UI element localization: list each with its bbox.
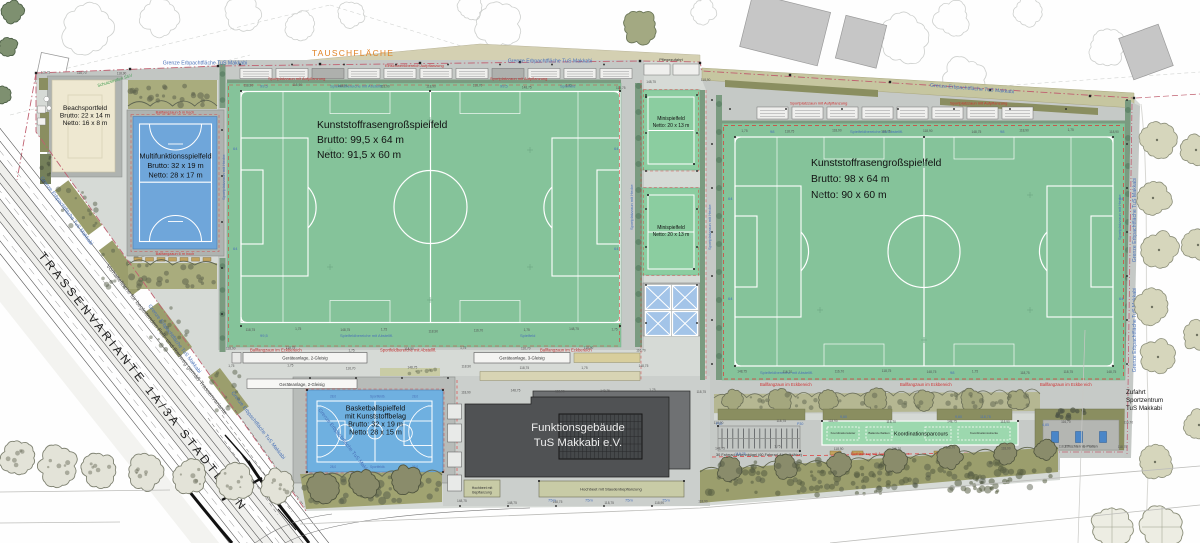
svg-text:1,75: 1,75 [381, 327, 387, 331]
svg-text:64: 64 [1119, 296, 1124, 301]
svg-text:118,90: 118,90 [293, 83, 303, 87]
svg-text:118,75: 118,75 [616, 86, 626, 90]
svg-text:Sportplatzzaun mit Hecke: Sportplatzzaun mit Hecke [1117, 194, 1122, 240]
svg-text:Ballfangzaun im Eckbereich: Ballfangzaun im Eckbereich [900, 382, 952, 387]
svg-text:Bepflanzung: Bepflanzung [472, 491, 492, 495]
svg-text:Beachsportfeld: Beachsportfeld [63, 105, 107, 112]
svg-text:116,70: 116,70 [636, 348, 646, 352]
svg-text:118,90: 118,90 [429, 329, 439, 333]
svg-text:118,90: 118,90 [584, 346, 594, 350]
svg-text:Sportplatzzaun mit Hecke: Sportplatzzaun mit Hecke [707, 204, 712, 250]
svg-text:118,75: 118,75 [1064, 370, 1074, 374]
svg-text:118,90: 118,90 [1001, 446, 1011, 450]
svg-text:148,75: 148,75 [511, 388, 521, 392]
svg-text:98: 98 [950, 370, 955, 375]
svg-text:118,90: 118,90 [1109, 130, 1119, 134]
svg-text:118,75: 118,75 [1020, 371, 1030, 375]
svg-text:64: 64 [233, 146, 238, 151]
svg-text:Ballfangzaun im Eckbereich: Ballfangzaun im Eckbereich [1040, 382, 1092, 387]
svg-text:Brutto: 99,5 x 64 m: Brutto: 99,5 x 64 m [317, 135, 404, 146]
svg-text:118,75: 118,75 [246, 328, 256, 332]
svg-text:116,70: 116,70 [1061, 420, 1071, 424]
svg-text:116,70: 116,70 [886, 420, 896, 424]
svg-text:Minispielfeld: Minispielfeld [657, 225, 685, 231]
svg-text:1,75: 1,75 [612, 328, 618, 332]
svg-text:118,75: 118,75 [1118, 445, 1128, 449]
svg-text:118,75: 118,75 [286, 346, 296, 350]
svg-text:Sportfeldb.: Sportfeldb. [370, 395, 386, 399]
svg-text:118,75: 118,75 [604, 501, 614, 505]
svg-text:Sportplatzzaun mit Aufpflanzun: Sportplatzzaun mit Aufpflanzung [950, 101, 1007, 106]
svg-text:Sportplatzzaun mit Aufpflanzun: Sportplatzzaun mit Aufpflanzung [790, 101, 847, 106]
svg-text:1,75: 1,75 [774, 445, 780, 449]
svg-text:148,75: 148,75 [338, 84, 348, 88]
svg-text:P30: P30 [797, 422, 803, 426]
svg-text:TuS Makkabi: TuS Makkabi [1126, 405, 1162, 412]
svg-text:1,75: 1,75 [566, 84, 572, 88]
svg-text:1,75: 1,75 [649, 388, 655, 392]
svg-text:1,75: 1,75 [228, 364, 234, 368]
svg-text:148,75: 148,75 [553, 500, 563, 504]
svg-text:P30: P30 [716, 422, 722, 426]
svg-text:116,70: 116,70 [473, 83, 483, 87]
svg-text:Multifunktionsspielfeld: Multifunktionsspielfeld [139, 152, 211, 161]
svg-text:Hochbeet mit Staudenbepflanzun: Hochbeet mit Staudenbepflanzung [580, 487, 641, 492]
svg-text:Brutto: 32 x 19 m: Brutto: 32 x 19 m [147, 161, 203, 170]
svg-text:118,90: 118,90 [555, 390, 565, 394]
svg-text:118,75: 118,75 [882, 369, 892, 373]
svg-text:64: 64 [728, 196, 733, 201]
svg-text:116,70: 116,70 [892, 447, 902, 451]
svg-text:118,75: 118,75 [735, 452, 746, 456]
svg-text:118,75: 118,75 [980, 415, 991, 419]
svg-text:148,75: 148,75 [737, 370, 747, 374]
svg-text:148,75: 148,75 [340, 328, 350, 332]
svg-text:118,90: 118,90 [923, 129, 933, 133]
svg-text:118,75: 118,75 [697, 390, 707, 394]
svg-text:118,90: 118,90 [426, 84, 436, 88]
svg-text:99,5: 99,5 [500, 84, 509, 89]
svg-text:1,75: 1,75 [741, 129, 747, 133]
svg-text:Brutto: 98 x 64 m: Brutto: 98 x 64 m [811, 174, 889, 185]
svg-text:Sportplatzzaun mit Aufpflanzun: Sportplatzzaun mit Aufpflanzung [268, 76, 325, 81]
svg-text:28,0: 28,0 [330, 395, 336, 399]
svg-text:118,90: 118,90 [244, 84, 254, 88]
svg-text:Netto: 16 x 8 m: Netto: 16 x 8 m [63, 120, 108, 127]
svg-text:118,75: 118,75 [520, 366, 530, 370]
svg-text:Netto: 28 x 17 m: Netto: 28 x 17 m [148, 171, 202, 180]
svg-text:Zufahrt: Zufahrt [1126, 389, 1146, 396]
svg-text:Koordinationsleiter: Koordinationsleiter [831, 431, 856, 435]
svg-text:116,70: 116,70 [346, 366, 356, 370]
svg-text:1,75: 1,75 [1068, 128, 1074, 132]
svg-text:Geräteanlage, 3-Gleisig: Geräteanlage, 3-Gleisig [499, 356, 545, 361]
svg-text:1,75: 1,75 [295, 327, 301, 331]
svg-text:118,90: 118,90 [226, 347, 236, 351]
svg-text:148,75: 148,75 [646, 80, 656, 84]
svg-text:148,75: 148,75 [1107, 370, 1117, 374]
svg-text:Kunststoffrasengroßspielfeld: Kunststoffrasengroßspielfeld [811, 158, 942, 169]
svg-text:148,75: 148,75 [927, 370, 937, 374]
svg-text:148,75: 148,75 [457, 499, 467, 503]
svg-text:118,90: 118,90 [832, 128, 842, 132]
svg-text:Spielfeldbereiche mit Abstellf: Spielfeldbereiche mit Abstellfl. [850, 129, 903, 134]
svg-text:Sportfeldb.: Sportfeldb. [370, 465, 386, 469]
svg-text:1,75: 1,75 [972, 369, 978, 373]
svg-text:98: 98 [1000, 129, 1005, 134]
svg-text:118,90: 118,90 [1019, 128, 1029, 132]
svg-text:64: 64 [614, 146, 619, 151]
svg-text:99,5: 99,5 [260, 333, 269, 338]
svg-text:4,85: 4,85 [1042, 423, 1049, 427]
svg-text:9,60: 9,60 [955, 415, 962, 419]
svg-text:Grenze Erbpachtfläche TuS Makk: Grenze Erbpachtfläche TuS Makkabi [508, 59, 592, 65]
svg-text:116,70: 116,70 [474, 329, 484, 333]
svg-text:118,75: 118,75 [1059, 445, 1069, 449]
svg-text:Grenze Erbpachtfläche TuS Makk: Grenze Erbpachtfläche TuS Makkabi [163, 61, 247, 67]
svg-text:118,75: 118,75 [777, 419, 787, 423]
svg-text:118,90: 118,90 [834, 447, 844, 451]
svg-text:148,75: 148,75 [947, 419, 957, 423]
svg-text:118,90: 118,90 [828, 419, 838, 423]
svg-text:118,90: 118,90 [701, 78, 711, 82]
svg-text:118,90: 118,90 [655, 501, 665, 505]
svg-text:28,0: 28,0 [412, 395, 418, 399]
svg-text:9,60: 9,60 [840, 415, 847, 419]
svg-text:Sportzentrum: Sportzentrum [1126, 397, 1163, 404]
svg-text:Geräteanlage, 2-Gleisig: Geräteanlage, 2-Gleisig [279, 382, 325, 387]
svg-text:1,75: 1,75 [581, 366, 587, 370]
svg-text:118,90: 118,90 [380, 85, 390, 89]
svg-text:Ballfangzaun 6 m hoch: Ballfangzaun 6 m hoch [156, 252, 195, 256]
svg-text:Koordinationsparcours: Koordinationsparcours [894, 432, 948, 438]
svg-text:148,75: 148,75 [600, 389, 610, 393]
svg-text:148,75: 148,75 [408, 366, 418, 370]
svg-text:Netto: 20 x 13 m: Netto: 20 x 13 m [653, 123, 690, 129]
svg-text:1,75: 1,75 [287, 364, 293, 368]
svg-text:1,75: 1,75 [524, 328, 530, 332]
svg-text:118,90: 118,90 [461, 391, 471, 395]
svg-text:Netto: 90 x 60 m: Netto: 90 x 60 m [811, 190, 887, 201]
svg-text:118,75: 118,75 [881, 130, 891, 134]
svg-text:116,70: 116,70 [1124, 421, 1134, 425]
svg-text:Minispielfeld: Minispielfeld [657, 116, 685, 122]
svg-text:1,75: 1,75 [349, 349, 355, 353]
svg-text:118,90: 118,90 [698, 500, 708, 504]
svg-text:Hochbeet mit: Hochbeet mit [472, 486, 493, 490]
svg-text:Brutto: 22 x 14 m: Brutto: 22 x 14 m [60, 113, 111, 120]
svg-text:64: 64 [233, 246, 238, 251]
svg-text:Netto: 91,5 x 60 m: Netto: 91,5 x 60 m [317, 150, 401, 161]
svg-text:Funktionsgebäude: Funktionsgebäude [531, 422, 625, 434]
svg-text:148,75: 148,75 [639, 364, 649, 368]
svg-text:Ballfangzaun im Eckbereich: Ballfangzaun im Eckbereich [760, 382, 812, 387]
svg-text:75m: 75m [585, 498, 593, 503]
svg-text:Sportplatzzaun mit Hecke: Sportplatzzaun mit Hecke [221, 154, 226, 200]
svg-text:Spielfeldbereiche mit Abstellf: Spielfeldbereiche mit Abstellfl. [340, 333, 393, 338]
svg-text:Spielfeld: Spielfeld [520, 333, 535, 338]
svg-text:TuS Makkabi e.V.: TuS Makkabi e.V. [534, 437, 622, 449]
svg-text:Geräteanlage, 2-Gleisig: Geräteanlage, 2-Gleisig [282, 356, 328, 361]
svg-text:148,75: 148,75 [715, 446, 725, 450]
svg-text:118,75: 118,75 [41, 71, 51, 75]
svg-text:Netto: 20 x 13 m: Netto: 20 x 13 m [653, 232, 690, 238]
svg-text:118,90: 118,90 [1000, 420, 1010, 424]
svg-text:116,70: 116,70 [521, 346, 531, 350]
svg-text:148,75: 148,75 [522, 86, 532, 90]
svg-text:1,75: 1,75 [460, 346, 466, 350]
svg-text:99,5: 99,5 [260, 84, 269, 89]
svg-text:Sportplatzzaun mit Hecke: Sportplatzzaun mit Hecke [629, 184, 634, 230]
svg-text:98: 98 [770, 129, 775, 134]
svg-text:Ballfangzaun 6 m hoch: Ballfangzaun 6 m hoch [156, 111, 195, 115]
svg-text:118,90: 118,90 [117, 72, 127, 76]
svg-text:116,70: 116,70 [783, 370, 793, 374]
svg-text:Balancierbalken: Balancierbalken [868, 431, 890, 435]
svg-text:148,75: 148,75 [972, 130, 982, 134]
svg-text:28,0: 28,0 [330, 465, 336, 469]
svg-text:118,90: 118,90 [462, 365, 472, 369]
svg-text:148,75: 148,75 [507, 501, 517, 505]
svg-text:Koordinationsstrecke: Koordinationsstrecke [970, 431, 998, 435]
svg-text:64: 64 [728, 296, 733, 301]
svg-text:118,75: 118,75 [785, 129, 795, 133]
svg-text:116,70: 116,70 [77, 71, 87, 75]
svg-text:Kunststoffrasengroßspielfeld: Kunststoffrasengroßspielfeld [317, 120, 448, 131]
svg-text:116,70: 116,70 [946, 446, 956, 450]
svg-text:Grenze Erbpachtfläche TuS Makk: Grenze Erbpachtfläche TuS Makkabi [1132, 178, 1138, 262]
svg-text:148,75: 148,75 [569, 327, 579, 331]
svg-text:Sportplatzzaun mit Aufpflanzun: Sportplatzzaun mit Aufpflanzung [490, 76, 547, 81]
svg-text:75m: 75m [625, 498, 633, 503]
svg-text:118,90: 118,90 [404, 347, 414, 351]
svg-text:Netto: 28 x 15 m: Netto: 28 x 15 m [349, 428, 402, 437]
svg-text:64: 64 [614, 246, 619, 251]
svg-text:TAUSCHFLÄCHE: TAUSCHFLÄCHE [312, 48, 394, 58]
svg-text:116,70: 116,70 [835, 370, 845, 374]
